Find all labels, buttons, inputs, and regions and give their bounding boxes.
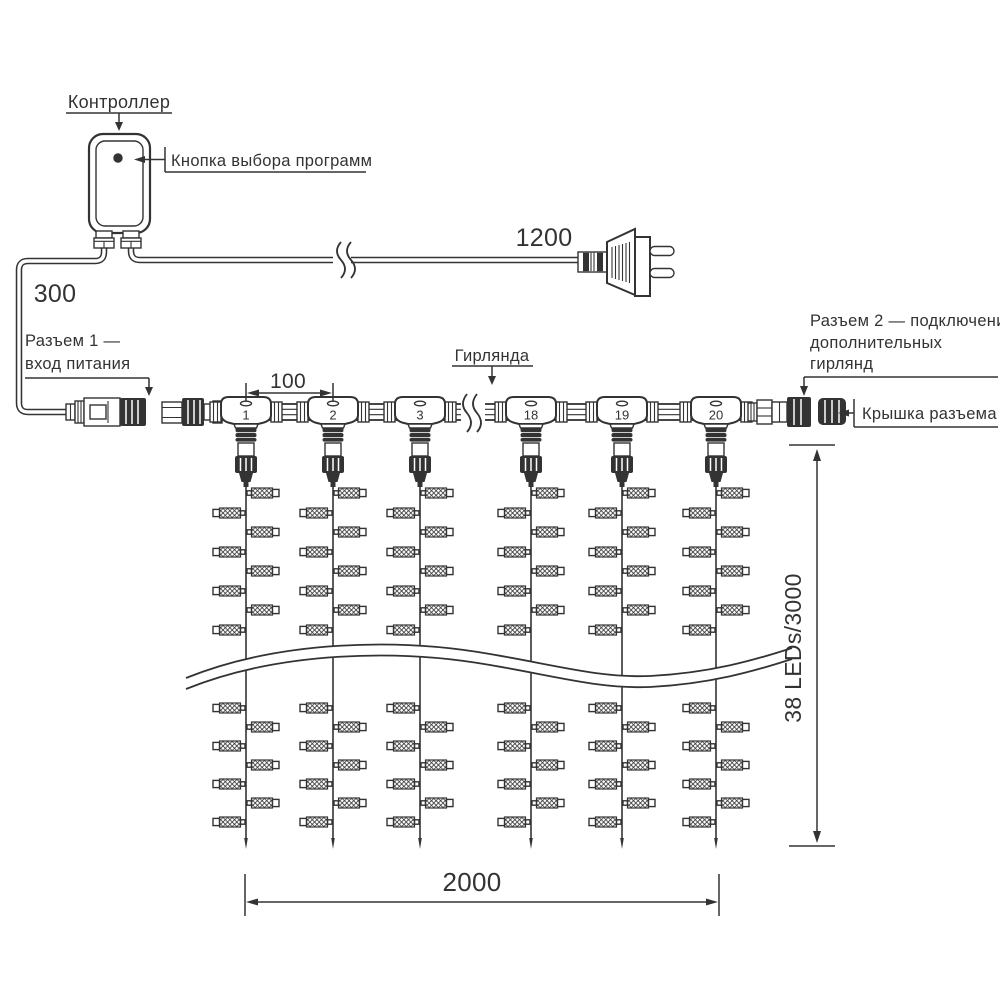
connector1-label-line2: вход питания bbox=[25, 355, 130, 373]
drop-dimension-label: 38 LEDs/3000 bbox=[780, 573, 806, 722]
t-connector-number: 18 bbox=[524, 408, 538, 423]
t-connector-number: 20 bbox=[709, 408, 723, 423]
led-strand bbox=[589, 443, 655, 849]
connector1-callout bbox=[25, 378, 153, 396]
program-button-label: Кнопка выбора программ bbox=[171, 152, 372, 170]
connector1-label-line1: Разъем 1 — bbox=[25, 332, 121, 350]
connector2-label-line2: дополнительных bbox=[810, 334, 943, 352]
connector1-male-icon bbox=[66, 398, 146, 426]
connector2-icon bbox=[748, 397, 811, 427]
garland-callout bbox=[452, 366, 533, 385]
dim-arrow-up-icon bbox=[813, 449, 821, 461]
power-plug-icon bbox=[578, 229, 674, 296]
program-select-button-dot bbox=[113, 153, 122, 162]
curtain-break-wave-icon bbox=[186, 645, 792, 689]
t-connector-number: 2 bbox=[329, 408, 336, 423]
led-strands bbox=[213, 443, 749, 849]
garland-label: Гирлянда bbox=[455, 347, 530, 365]
spacing-dimension-label: 100 bbox=[270, 370, 306, 393]
garland-arrow-icon bbox=[488, 376, 496, 385]
led-strand bbox=[498, 443, 564, 849]
controller-arrow-icon bbox=[115, 122, 123, 131]
dim-arrow-right-icon bbox=[706, 899, 718, 906]
plug-prong bbox=[650, 247, 674, 256]
diagram-canvas: Контроллер Кнопка выбора программ 1200 3… bbox=[0, 0, 1000, 1000]
connector-cap-icon bbox=[818, 398, 846, 425]
led-strand bbox=[213, 443, 279, 849]
controller-label: Контроллер bbox=[68, 92, 170, 112]
connector2-callout bbox=[800, 377, 998, 396]
connector2-label-line3: гирлянд bbox=[810, 355, 873, 373]
controller bbox=[66, 113, 366, 248]
dim-arrow-right-icon bbox=[320, 390, 332, 397]
cap-label: Крышка разъема bbox=[862, 405, 997, 423]
dim-arrow-left-icon bbox=[247, 390, 259, 397]
t-connector-number: 1 bbox=[242, 408, 249, 423]
connector1-arrow-icon bbox=[145, 387, 153, 396]
t-connector-number: 3 bbox=[416, 408, 423, 423]
dim-arrow-left-icon bbox=[246, 899, 258, 906]
width-dimension-label: 2000 bbox=[442, 867, 501, 897]
controller-cable-dimension: 300 bbox=[34, 280, 77, 308]
connector2-arrow-icon bbox=[800, 386, 808, 396]
curtain-lights-wiring-diagram: Контроллер Кнопка выбора программ 1200 3… bbox=[0, 0, 1000, 1000]
plug-prong bbox=[650, 269, 674, 278]
dim-arrow-down-icon bbox=[813, 831, 821, 843]
connector2-label-line1: Разъем 2 — подключение bbox=[810, 312, 1000, 330]
power-cord-dimension: 1200 bbox=[516, 224, 573, 252]
t-connector-number: 19 bbox=[615, 408, 629, 423]
led-strand bbox=[683, 443, 749, 849]
